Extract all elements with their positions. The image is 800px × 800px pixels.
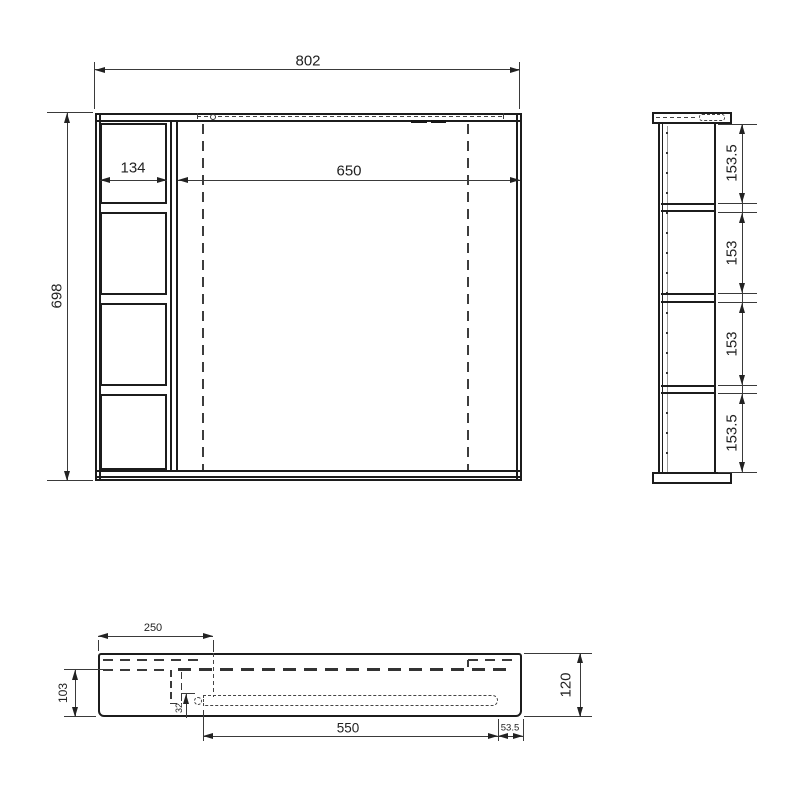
hidden-line <box>197 116 503 117</box>
arrow <box>64 471 70 481</box>
arrow <box>98 633 108 639</box>
arrow <box>739 193 745 203</box>
extension-line <box>98 640 99 651</box>
hidden-line <box>202 124 204 470</box>
extension-line <box>718 472 757 473</box>
compartment <box>100 303 167 386</box>
hidden-line <box>103 669 170 671</box>
hidden-line-tick <box>197 113 198 119</box>
extension-line <box>718 293 757 294</box>
hidden-line <box>103 659 203 661</box>
hidden-line <box>467 660 469 670</box>
arrow <box>178 177 188 183</box>
arrow <box>488 733 498 739</box>
arrow <box>739 303 745 313</box>
plan-outline <box>98 653 522 717</box>
arrow <box>739 375 745 385</box>
hidden-line <box>213 653 214 697</box>
arrow <box>203 633 213 639</box>
extension-line <box>718 124 757 125</box>
dim-label: 250 <box>144 622 162 634</box>
extension-line <box>213 640 214 652</box>
dim-label: 153.5 <box>724 414 741 452</box>
arrow <box>64 113 70 123</box>
extension-line <box>718 203 757 204</box>
extension-line <box>718 393 757 394</box>
hidden-slot <box>203 695 498 706</box>
divider-panel <box>170 122 178 470</box>
hidden-line <box>656 117 698 118</box>
dim-label: 550 <box>337 721 360 736</box>
dim-label: 153.5 <box>724 144 741 182</box>
arrow <box>513 733 523 739</box>
hole-marker <box>210 114 216 120</box>
dimension-line <box>742 124 743 472</box>
hidden-bracket-side <box>170 670 172 704</box>
extension-line <box>47 112 93 113</box>
edge-line <box>516 115 518 479</box>
dimension-line <box>98 636 213 637</box>
dim-label: 120 <box>558 672 575 697</box>
arrow <box>203 733 213 739</box>
hidden-slot-end <box>194 697 202 705</box>
hidden-line <box>468 659 514 661</box>
arrow <box>95 67 105 73</box>
arrow <box>72 670 78 680</box>
arrow <box>739 283 745 293</box>
dim-label: 153 <box>724 331 741 356</box>
extension-line <box>64 669 103 670</box>
hidden-line-tick <box>503 113 504 119</box>
extension-line <box>718 385 757 386</box>
arrow <box>157 177 167 183</box>
shelf-section <box>661 293 716 303</box>
top-rail-line <box>97 120 520 122</box>
dim-label: 698 <box>49 283 66 308</box>
shelf-section <box>661 385 716 394</box>
arrow <box>498 733 508 739</box>
arrow <box>577 653 583 663</box>
hidden-back-edge <box>178 668 514 671</box>
bottom-rail-line <box>96 476 521 478</box>
compartment <box>100 212 167 295</box>
arrow <box>739 124 745 134</box>
dim-label: 103 <box>56 683 70 703</box>
extension-line <box>64 716 96 717</box>
dim-label: 32 <box>174 703 184 713</box>
shelf-section <box>661 203 716 212</box>
dim-label: 650 <box>333 163 364 180</box>
bottom-rail-line <box>97 470 520 472</box>
arrow <box>739 394 745 404</box>
bottom-cap <box>652 472 732 484</box>
dimension-line <box>67 113 68 481</box>
dimension-line <box>178 180 520 181</box>
arrow <box>739 213 745 223</box>
bracket-mark <box>431 120 446 123</box>
arrow <box>510 177 520 183</box>
arrow <box>739 462 745 472</box>
extension-line <box>718 212 757 213</box>
bracket-mark <box>411 120 427 123</box>
dim-label: 134 <box>120 160 145 177</box>
dim-label: 153 <box>724 240 741 265</box>
arrow <box>577 707 583 717</box>
technical-drawing: 802 698 134 650 <box>0 0 800 800</box>
extension-line <box>718 302 757 303</box>
compartment <box>100 394 167 470</box>
arrow <box>72 707 78 717</box>
hidden-line <box>467 124 469 470</box>
dimension-line <box>203 736 523 737</box>
arrow <box>100 177 110 183</box>
extension-line <box>47 480 93 481</box>
edge-line <box>658 124 660 472</box>
hidden-bracket <box>699 114 725 121</box>
dim-label: 802 <box>295 53 320 70</box>
dim-label: 53.5 <box>501 723 520 734</box>
arrow <box>510 67 520 73</box>
